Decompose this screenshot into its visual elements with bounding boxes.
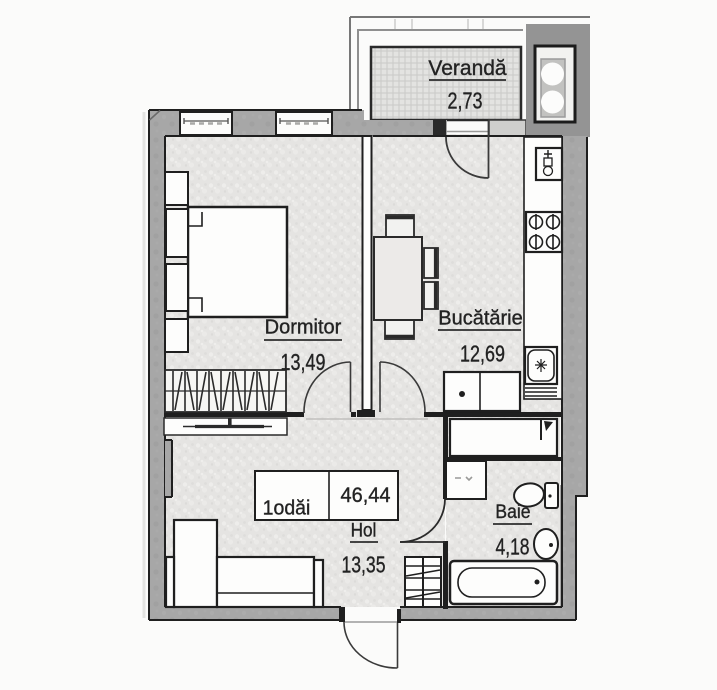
svg-text:13,35: 13,35 [341, 552, 385, 578]
svg-text:13,49: 13,49 [281, 350, 326, 376]
svg-text:Hol: Hol [351, 518, 377, 540]
svg-text:Bucătărie: Bucătărie [438, 308, 523, 330]
svg-text:Dormitor: Dormitor [265, 317, 342, 339]
svg-text:2,73: 2,73 [448, 88, 483, 114]
svg-text:Verandă: Verandă [428, 57, 507, 80]
svg-text:4,18: 4,18 [496, 535, 530, 560]
svg-text:Baie: Baie [495, 500, 530, 522]
svg-text:1odăi: 1odăi [263, 497, 311, 520]
svg-text:46,44: 46,44 [340, 483, 390, 507]
svg-text:12,69: 12,69 [460, 341, 505, 367]
